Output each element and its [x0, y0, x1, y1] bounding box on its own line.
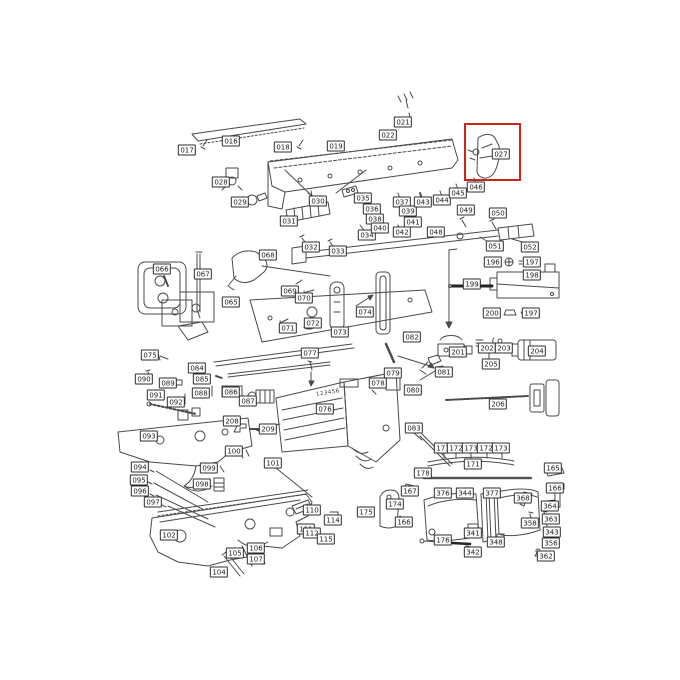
part-label-099: 099	[200, 463, 218, 474]
part-label-040: 040	[371, 223, 389, 234]
part-label-198: 198	[523, 270, 541, 281]
part-label-171: 171	[464, 459, 482, 470]
part-label-344: 344	[456, 488, 474, 499]
part-label-107: 107	[247, 554, 265, 565]
part-label-362: 362	[537, 551, 555, 562]
part-label-096: 096	[131, 486, 149, 497]
part-label-114: 114	[324, 515, 342, 526]
part-label-033: 033	[329, 246, 347, 257]
part-label-layer: 0160170180190210220270280290300310320330…	[0, 0, 680, 680]
part-label-197: 197	[523, 257, 541, 268]
part-label-199: 199	[463, 279, 481, 290]
part-label-083: 083	[405, 423, 423, 434]
part-label-104: 104	[210, 567, 228, 578]
part-label-343: 343	[543, 527, 561, 538]
part-label-027: 027	[492, 149, 510, 160]
part-label-081: 081	[435, 367, 453, 378]
part-label-048: 048	[427, 227, 445, 238]
part-label-045: 045	[449, 188, 467, 199]
part-label-166: 166	[546, 483, 564, 494]
part-label-077: 077	[301, 348, 319, 359]
part-label-070: 070	[295, 293, 313, 304]
part-label-341: 341	[464, 528, 482, 539]
part-label-173: 173	[492, 443, 510, 454]
part-label-065: 065	[222, 297, 240, 308]
part-label-080: 080	[404, 385, 422, 396]
part-label-079: 079	[384, 368, 402, 379]
part-label-090: 090	[135, 374, 153, 385]
part-label-046: 046	[467, 182, 485, 193]
part-label-071: 071	[279, 323, 297, 334]
part-label-095: 095	[130, 475, 148, 486]
part-label-035: 035	[354, 193, 372, 204]
part-label-201: 201	[449, 347, 467, 358]
part-label-174: 174	[386, 499, 404, 510]
part-label-074: 074	[356, 307, 374, 318]
part-label-209: 209	[259, 424, 277, 435]
part-label-078: 078	[369, 378, 387, 389]
part-label-167: 167	[401, 486, 419, 497]
part-label-202: 202	[478, 343, 496, 354]
part-label-363: 363	[542, 514, 560, 525]
part-label-175: 175	[357, 507, 375, 518]
part-label-021: 021	[394, 117, 412, 128]
part-label-072: 072	[304, 318, 322, 329]
part-label-092: 092	[167, 397, 185, 408]
part-label-205: 205	[482, 359, 500, 370]
exploded-diagram: 123456 016017018019021022027028029030031…	[0, 0, 680, 680]
part-label-028: 028	[212, 177, 230, 188]
part-label-165: 165	[544, 463, 562, 474]
part-label-348: 348	[487, 537, 505, 548]
part-label-093: 093	[140, 431, 158, 442]
part-label-019: 019	[327, 141, 345, 152]
part-label-200: 200	[483, 308, 501, 319]
part-label-097: 097	[144, 497, 162, 508]
part-label-197: 197	[522, 308, 540, 319]
part-label-018: 018	[274, 142, 292, 153]
part-label-076: 076	[316, 404, 334, 415]
part-label-030: 030	[309, 196, 327, 207]
part-label-067: 067	[194, 269, 212, 280]
part-label-115: 115	[317, 534, 335, 545]
part-label-342: 342	[464, 547, 482, 558]
part-label-042: 042	[393, 227, 411, 238]
part-label-377: 377	[483, 488, 501, 499]
part-label-106: 106	[247, 543, 265, 554]
part-label-088: 088	[192, 388, 210, 399]
part-label-204: 204	[528, 346, 546, 357]
part-label-098: 098	[193, 479, 211, 490]
part-label-016: 016	[222, 136, 240, 147]
part-label-075: 075	[141, 350, 159, 361]
part-label-176: 176	[434, 535, 452, 546]
part-label-358: 358	[521, 518, 539, 529]
part-label-091: 091	[147, 390, 165, 401]
part-label-089: 089	[159, 378, 177, 389]
part-label-051: 051	[486, 241, 504, 252]
part-label-203: 203	[495, 343, 513, 354]
part-label-049: 049	[457, 205, 475, 216]
part-label-100: 100	[225, 446, 243, 457]
part-label-110: 110	[303, 505, 321, 516]
part-label-356: 356	[542, 538, 560, 549]
part-label-050: 050	[489, 208, 507, 219]
part-label-066: 066	[153, 264, 171, 275]
part-label-022: 022	[379, 130, 397, 141]
part-label-094: 094	[131, 462, 149, 473]
part-label-031: 031	[280, 216, 298, 227]
part-label-102: 102	[160, 530, 178, 541]
part-label-087: 087	[239, 396, 257, 407]
part-label-105: 105	[226, 548, 244, 559]
part-label-206: 206	[489, 399, 507, 410]
part-label-178: 178	[414, 468, 432, 479]
part-label-082: 082	[403, 332, 421, 343]
part-label-208: 208	[223, 416, 241, 427]
part-label-032: 032	[302, 242, 320, 253]
part-label-085: 085	[193, 374, 211, 385]
part-label-068: 068	[259, 250, 277, 261]
part-label-166: 166	[395, 517, 413, 528]
part-label-364: 364	[541, 501, 559, 512]
part-label-101: 101	[264, 458, 282, 469]
part-label-052: 052	[521, 242, 539, 253]
part-label-017: 017	[178, 145, 196, 156]
part-label-084: 084	[188, 363, 206, 374]
part-label-029: 029	[231, 197, 249, 208]
part-label-368: 368	[514, 493, 532, 504]
part-label-376: 376	[434, 488, 452, 499]
part-label-043: 043	[414, 197, 432, 208]
part-label-086: 086	[222, 387, 240, 398]
part-label-073: 073	[331, 327, 349, 338]
part-label-196: 196	[484, 257, 502, 268]
